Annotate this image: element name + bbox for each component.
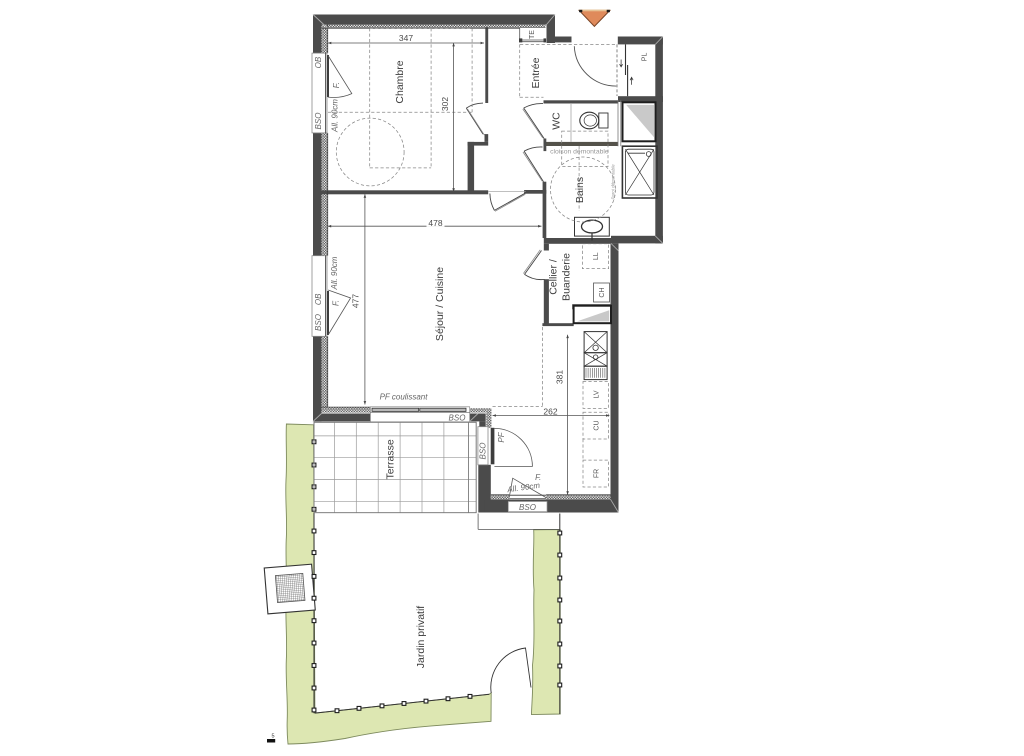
svg-text:PL: PL [642, 53, 649, 62]
svg-text:Terrasse: Terrasse [385, 439, 397, 479]
svg-text:Jardin privatif: Jardin privatif [415, 606, 427, 669]
svg-text:BSO: BSO [519, 503, 536, 512]
svg-text:347: 347 [399, 33, 413, 43]
svg-text:CH: CH [599, 287, 606, 297]
svg-text:Chambre: Chambre [394, 60, 406, 103]
svg-text:All. 90cm: All. 90cm [506, 481, 541, 495]
svg-text:cloison démontable: cloison démontable [550, 148, 609, 155]
svg-text:5: 5 [272, 734, 275, 740]
svg-text:478: 478 [428, 218, 442, 228]
svg-text:Buanderie: Buanderie [560, 253, 572, 301]
svg-text:LL: LL [593, 252, 600, 260]
svg-text:TE: TE [529, 30, 536, 39]
svg-text:All. 90cm: All. 90cm [330, 256, 339, 290]
svg-text:BSO: BSO [479, 443, 488, 460]
svg-text:Paroi démontable: Paroi démontable [611, 164, 616, 200]
svg-text:477: 477 [351, 294, 361, 308]
svg-text:BSO: BSO [314, 113, 323, 130]
svg-text:Bains: Bains [574, 177, 586, 203]
svg-text:PF: PF [497, 431, 506, 442]
svg-text:BSO: BSO [314, 314, 323, 331]
svg-text:BSO: BSO [449, 413, 466, 422]
svg-text:Entrée: Entrée [530, 57, 542, 88]
svg-text:Séjour / Cuisine: Séjour / Cuisine [434, 267, 446, 341]
svg-text:All. 90cm: All. 90cm [331, 99, 340, 133]
svg-text:WC: WC [551, 112, 563, 130]
svg-text:262: 262 [543, 406, 557, 416]
svg-text:PF coulissant: PF coulissant [380, 393, 429, 402]
svg-text:381: 381 [555, 370, 565, 384]
svg-text:OB: OB [314, 293, 323, 305]
svg-text:FR: FR [593, 469, 600, 478]
svg-text:CU: CU [593, 420, 600, 430]
svg-text:OB: OB [314, 56, 323, 68]
svg-text:302: 302 [440, 97, 450, 111]
svg-text:F.: F. [332, 82, 341, 88]
svg-text:LV: LV [593, 390, 600, 398]
svg-text:Cellier /: Cellier / [547, 259, 559, 295]
svg-text:F.: F. [332, 300, 341, 306]
